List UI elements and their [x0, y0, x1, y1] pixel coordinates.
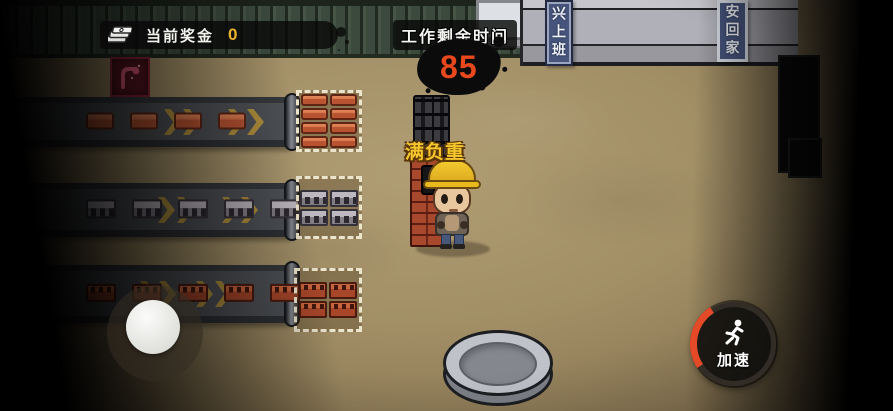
sign-return-home: 安回家: [717, 0, 748, 62]
game-screen: 兴上班 安回家: [0, 0, 893, 411]
character-eye: [441, 194, 448, 204]
red-brick: [218, 112, 246, 129]
red-brick: [301, 122, 328, 134]
belt-items: [86, 112, 246, 129]
hard-hat-brim: [423, 180, 481, 189]
red-brick: [86, 112, 114, 129]
dropzone-perforated-brick[interactable]: [294, 268, 362, 332]
red-brick: [330, 136, 357, 148]
sign-go-to-work-label: 兴上班: [549, 6, 569, 60]
cinder-block: [132, 199, 162, 218]
sign-return-home-label: 安回家: [723, 4, 743, 58]
red-brick: [301, 108, 328, 120]
cinder-block: [330, 209, 358, 226]
red-brick: [330, 108, 357, 120]
red-brick: [330, 122, 357, 134]
speed-up-button[interactable]: 加速: [692, 302, 776, 386]
manhole-cover: [443, 330, 553, 408]
red-brick: [130, 112, 158, 129]
perforated-brick: [329, 282, 357, 299]
conveyor-cinder-block: [0, 183, 296, 237]
money-stack-icon: [108, 25, 132, 45]
red-brick: [301, 136, 328, 148]
flex-arm-poster: [110, 57, 150, 97]
perforated-brick: [86, 284, 116, 302]
work-timer: 工作剩余时间 85: [393, 20, 517, 50]
perforated-brick: [329, 301, 357, 318]
belt-items: [86, 284, 300, 302]
cinder-block: [86, 199, 116, 218]
perforated-brick: [299, 282, 327, 299]
red-brick: [301, 94, 328, 106]
perforated-brick: [224, 284, 254, 302]
manhole-inner-plate: [459, 342, 537, 386]
character-eye: [456, 194, 463, 204]
belt-items: [86, 199, 300, 218]
cinder-block: [300, 190, 328, 207]
timer-value: 85: [440, 49, 478, 86]
manhole-top: [443, 330, 553, 396]
character-shoe: [440, 244, 452, 249]
flex-arm-icon: [115, 62, 145, 92]
bonus-hud: 当前奖金 0: [100, 21, 338, 49]
cinder-block: [300, 209, 328, 226]
full-load-status-badge: 满负重: [405, 137, 465, 164]
cinder-block: [224, 199, 254, 218]
cinder-block: [178, 199, 208, 218]
worker-character: 满负重: [400, 93, 504, 261]
red-brick: [330, 94, 357, 106]
character-hand: [437, 221, 445, 229]
character-hand: [460, 221, 468, 229]
bonus-label: 当前奖金: [146, 25, 214, 46]
character-shirt: [445, 215, 459, 231]
dropzone-cinder-block[interactable]: [296, 176, 362, 239]
bonus-value: 0: [228, 25, 237, 45]
dark-crate: [788, 138, 822, 178]
joystick-knob[interactable]: [126, 300, 180, 354]
cinder-block: [330, 190, 358, 207]
character-shoe: [453, 244, 465, 249]
sign-go-to-work: 兴上班: [545, 0, 573, 66]
perforated-brick: [299, 301, 327, 318]
speed-cooldown-arc: [682, 292, 786, 396]
dropzone-red-brick[interactable]: [296, 90, 362, 152]
conveyor-red-brick: [0, 97, 296, 147]
red-brick: [174, 112, 202, 129]
